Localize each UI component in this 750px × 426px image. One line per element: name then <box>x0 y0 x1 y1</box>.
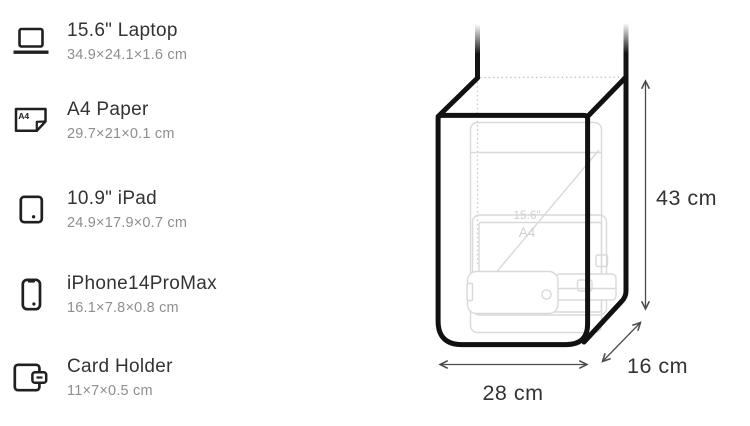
width-label: 28 cm <box>482 381 543 405</box>
a4-icon-label: A4 <box>18 112 29 122</box>
item-name: A4 Paper <box>67 99 175 121</box>
laptop-icon <box>8 26 54 57</box>
item-dimensions: 16.1×7.8×0.8 cm <box>67 300 217 316</box>
item-dimensions: 24.9×17.9×0.7 cm <box>67 215 187 231</box>
list-item-card-holder: Card Holder 11×7×0.5 cm <box>8 356 173 399</box>
item-dimensions: 11×7×0.5 cm <box>67 383 173 399</box>
item-name: 10.9" iPad <box>67 188 187 210</box>
list-item-a4-paper: A4 A4 Paper 29.7×21×0.1 cm <box>8 99 175 142</box>
ghost-items-group <box>467 123 616 333</box>
item-dimensions: 34.9×24.1×1.6 cm <box>67 47 187 63</box>
bag-top-left-edge <box>438 78 477 117</box>
height-label: 43 cm <box>656 186 717 210</box>
list-item-iphone: iPhone14ProMax 16.1×7.8×0.8 cm <box>8 273 217 316</box>
strap-left <box>475 24 480 79</box>
item-dimensions: 29.7×21×0.1 cm <box>67 126 175 142</box>
depth-label: 16 cm <box>627 354 688 378</box>
a4-paper-icon: A4 <box>8 106 54 134</box>
list-item-laptop: 15.6" Laptop 34.9×24.1×1.6 cm <box>8 20 187 63</box>
item-name: Card Holder <box>67 356 173 378</box>
card-holder-icon <box>8 362 54 393</box>
ipad-icon <box>8 194 54 225</box>
list-item-ipad: 10.9" iPad 24.9×17.9×0.7 cm <box>8 188 187 231</box>
iphone-icon <box>8 277 54 312</box>
bag-top-right-edge <box>588 77 626 117</box>
bag-3d-drawing: 15.6" A4 43 cm 28 cm 16 cm <box>410 0 750 426</box>
item-name: 15.6" Laptop <box>67 20 187 42</box>
ghost-laptop-label: 15.6" <box>513 208 541 222</box>
bag-size-infographic: 15.6" Laptop 34.9×24.1×1.6 cm A4 A4 Pape… <box>0 0 750 426</box>
strap-right <box>624 23 629 78</box>
ghost-a4-label: A4 <box>519 225 536 240</box>
ghost-iphone-outline <box>468 272 559 314</box>
ghost-iphone-side-button <box>467 284 473 301</box>
item-name: iPhone14ProMax <box>67 273 217 295</box>
